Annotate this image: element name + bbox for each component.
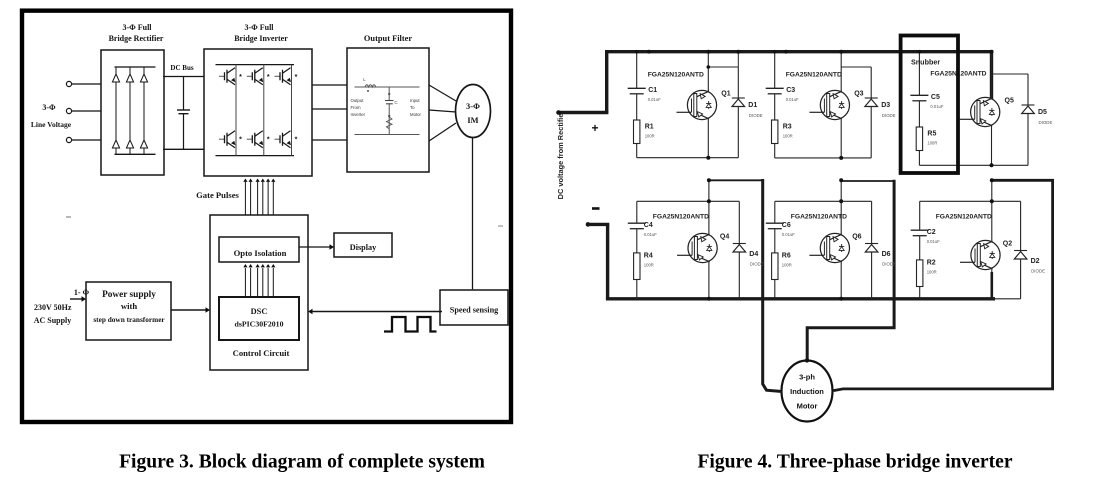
svg-text:Q4: Q4 (720, 234, 729, 241)
svg-text:AC Supply: AC Supply (34, 316, 72, 325)
svg-text:Display: Display (350, 243, 377, 252)
svg-text:Control Circuit: Control Circuit (233, 348, 290, 358)
svg-text:3-Φ: 3-Φ (466, 102, 480, 111)
svg-text:with: with (121, 301, 137, 311)
svg-text:R6: R6 (782, 253, 791, 260)
svg-text:R5: R5 (927, 131, 936, 138)
svg-text:100R: 100R (644, 263, 654, 268)
svg-text:Q2: Q2 (1003, 241, 1012, 248)
svg-text:3-ph: 3-ph (799, 373, 815, 382)
svg-text:To: To (410, 105, 415, 110)
svg-text:+: + (591, 121, 598, 135)
svg-text:Figure 4. Three-phase bridge i: Figure 4. Three-phase bridge inverter (697, 452, 1012, 473)
svg-text:100R: 100R (783, 134, 793, 139)
svg-text:C4: C4 (644, 222, 653, 229)
svg-text:0.01uF: 0.01uF (644, 232, 657, 237)
svg-text:Opto Isolation: Opto Isolation (234, 248, 287, 258)
svg-text:*: * (295, 137, 298, 144)
svg-text:Motor: Motor (410, 112, 422, 117)
svg-text:C2: C2 (927, 229, 936, 236)
svg-text:DIODE: DIODE (1031, 269, 1045, 274)
svg-text:Q5: Q5 (1005, 98, 1014, 105)
svg-text:D5: D5 (1038, 109, 1047, 116)
svg-text:*: * (239, 74, 242, 81)
svg-text:Gate Pulses: Gate Pulses (196, 190, 239, 200)
svg-text:Line Voltage: Line Voltage (31, 120, 72, 129)
svg-text:Motor: Motor (797, 402, 818, 411)
svg-text:100R: 100R (782, 263, 792, 268)
svg-text:dsPIC30F2010: dsPIC30F2010 (235, 320, 284, 329)
svg-text:R1: R1 (645, 124, 654, 131)
svg-text:Induction: Induction (790, 387, 824, 396)
svg-text:*: * (239, 137, 242, 144)
svg-text:C1: C1 (648, 87, 657, 94)
svg-text:DSC: DSC (251, 307, 268, 316)
svg-text:FGA25N120ANTD: FGA25N120ANTD (786, 72, 842, 79)
svg-text:R3: R3 (783, 124, 792, 131)
svg-text:100R: 100R (645, 134, 655, 139)
svg-text:IM: IM (467, 116, 478, 125)
svg-text:D2: D2 (1031, 258, 1040, 265)
svg-text:R2: R2 (927, 260, 936, 267)
svg-text:3-Φ Full: 3-Φ Full (122, 23, 152, 32)
svg-text:*: * (295, 74, 298, 81)
svg-text:3-Φ Full: 3-Φ Full (244, 23, 274, 32)
svg-text:DC voltage from Rectifier: DC voltage from Rectifier (556, 111, 565, 200)
svg-text:*: * (267, 74, 270, 81)
svg-text:Input: Input (410, 98, 420, 103)
svg-text:DIODE: DIODE (882, 262, 896, 267)
svg-text:0.01uF: 0.01uF (786, 97, 799, 102)
svg-text:L: L (363, 77, 366, 82)
svg-text:0.01uF: 0.01uF (927, 239, 940, 244)
svg-text:DIODE: DIODE (750, 262, 764, 267)
svg-text:3-Φ: 3-Φ (42, 103, 56, 112)
svg-text:Bridge Rectifier: Bridge Rectifier (109, 34, 164, 43)
svg-text:D3: D3 (881, 102, 890, 109)
svg-text:DIODE: DIODE (749, 113, 763, 118)
svg-text:100R: 100R (927, 141, 937, 146)
svg-text:Output: Output (351, 98, 365, 103)
svg-text:C3: C3 (786, 87, 795, 94)
svg-text:Speed sensing: Speed sensing (450, 306, 499, 315)
svg-text:1- Φ: 1- Φ (74, 288, 90, 297)
svg-text:FGA25N120ANTD: FGA25N120ANTD (648, 72, 704, 79)
svg-text:Figure 3. Block diagram of com: Figure 3. Block diagram of complete syst… (119, 452, 485, 473)
svg-text:Power supply: Power supply (102, 290, 156, 300)
svg-text:D4: D4 (749, 251, 758, 258)
svg-text:C6: C6 (782, 222, 791, 229)
svg-text:DIODE: DIODE (882, 113, 896, 118)
svg-text:D1: D1 (748, 102, 757, 109)
svg-text:FGA25N120ANTD: FGA25N120ANTD (936, 214, 992, 221)
svg-text:100R: 100R (927, 270, 937, 275)
svg-text:Q3: Q3 (854, 91, 863, 98)
svg-text:230V 50Hz: 230V 50Hz (34, 303, 72, 312)
svg-text:Snubber: Snubber (911, 58, 940, 67)
svg-text:0.01uF: 0.01uF (930, 104, 943, 109)
svg-text:Q1: Q1 (721, 91, 730, 98)
svg-text:FGA25N120ANTD: FGA25N120ANTD (653, 214, 709, 221)
svg-text:From: From (351, 105, 361, 110)
svg-text:step down transformer: step down transformer (93, 315, 165, 324)
svg-text:R4: R4 (644, 253, 653, 260)
svg-text:*: * (267, 137, 270, 144)
svg-text:Output Filter: Output Filter (364, 34, 412, 43)
svg-text:DC Bus: DC Bus (170, 64, 193, 72)
svg-text:0.01uF: 0.01uF (782, 232, 795, 237)
svg-text:C: C (394, 100, 398, 105)
svg-text:Q6: Q6 (852, 234, 861, 241)
svg-text:0.01uF: 0.01uF (648, 97, 661, 102)
svg-text:FGA25N120ANTD: FGA25N120ANTD (791, 214, 847, 221)
svg-text:C5: C5 (931, 94, 940, 101)
svg-text:Inverter: Inverter (351, 112, 366, 117)
svg-text:Bridge Inverter: Bridge Inverter (234, 34, 288, 43)
svg-text:D6: D6 (882, 251, 891, 258)
svg-text:DIODE: DIODE (1039, 120, 1053, 125)
